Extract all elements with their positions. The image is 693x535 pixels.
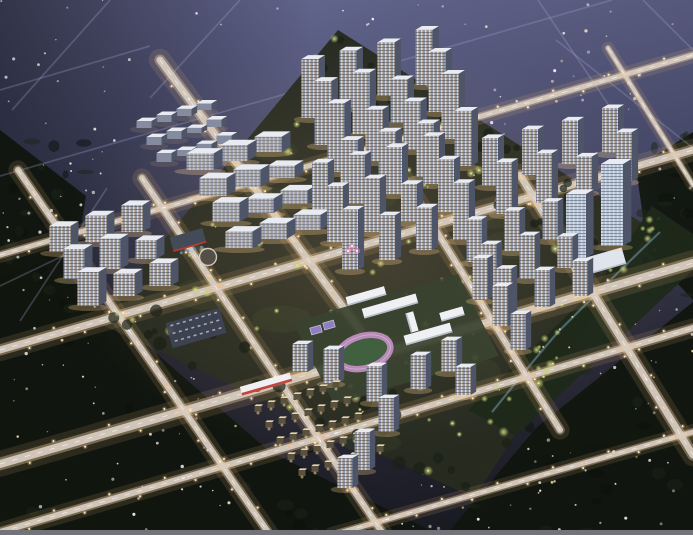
render-viewport (0, 0, 693, 535)
circular-plaza (200, 249, 217, 266)
viewer-bottom-bar (0, 530, 693, 535)
city-aerial-rendering (0, 0, 693, 535)
